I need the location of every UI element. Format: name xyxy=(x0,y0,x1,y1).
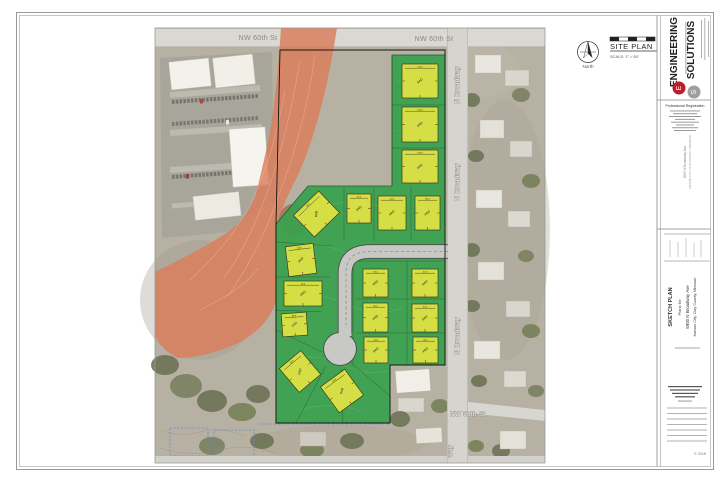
project-address: 5900 N Broadway Ave xyxy=(685,285,690,329)
lot-pad: 135.0PAD xyxy=(402,64,438,98)
tb-address-small-1: 5900 N Broadway Ave xyxy=(683,146,687,179)
site-plan-title: SITE PLAN SCALE: 1" = 60' xyxy=(610,37,657,59)
logo-e-letter: E xyxy=(676,86,683,91)
lot-pad: 60.0PAD xyxy=(412,304,438,332)
lot-pad: 60.0PAD xyxy=(413,337,438,363)
site-plan-sheet: 60.0PAD60.0PAD60.0PAD60.0PAD135.0PAD135.… xyxy=(0,0,720,479)
lot-pad: 60.0PAD xyxy=(285,243,316,276)
tb-data-table xyxy=(664,234,710,261)
svg-text:135.0: 135.0 xyxy=(417,66,423,68)
street-label-nw60-left: NW 60th St xyxy=(239,35,278,42)
tb-address-small-2: KANSAS CITY, CLAY COUNTY, MISSOURI xyxy=(688,135,692,190)
lot-pad: 60.0PAD xyxy=(363,303,388,332)
lot-pad: 60.0PAD xyxy=(364,337,388,363)
lot-pad: 60.0PAD xyxy=(284,281,322,306)
nw-60th-street-road xyxy=(155,28,545,47)
lot-pad: 60.0PAD xyxy=(412,269,438,297)
lot-pad: 60.0PAD xyxy=(347,194,371,223)
logo-solutions: SOLUTIONS xyxy=(686,21,697,80)
site-plan-label: SITE PLAN xyxy=(610,42,653,51)
title-block: ENGINEERING SOLUTIONS E S Professional R… xyxy=(657,16,711,467)
logo-engineering: ENGINEERING xyxy=(669,17,680,87)
project-plans-for: Plans for: xyxy=(677,299,682,316)
project-title: SKETCH PLAN xyxy=(668,287,674,326)
prof-reg-header: Professional Registration xyxy=(666,104,705,108)
lot-pad: 135.0PAD xyxy=(402,150,438,183)
lot-pad: 60.0PAD xyxy=(378,196,406,230)
project-block: SKETCH PLAN Plans for: 5900 N Broadway A… xyxy=(668,277,697,336)
north-arrow: North xyxy=(578,41,599,69)
street-label-broadway-top: N Broadway xyxy=(454,66,461,104)
certification-fineprint xyxy=(668,386,702,402)
prof-reg-fineprint xyxy=(669,111,701,132)
street-label-nw60-right: NW 60th St xyxy=(415,36,454,43)
lot-pad: 60.0PAD xyxy=(415,196,440,230)
svg-text:135.0: 135.0 xyxy=(417,109,423,111)
street-label-nw59: NW 59th St xyxy=(450,411,485,418)
street-label-broadway-mid: N Broadway xyxy=(454,163,461,201)
svg-text:PAD: PAD xyxy=(314,210,318,217)
lot-pad: 135.0PAD xyxy=(402,107,438,142)
revision-lines xyxy=(667,408,707,441)
lot-pad: 60.0PAD xyxy=(281,312,308,337)
north-label: North xyxy=(582,64,594,69)
project-city: Kansas City, Clay County, Missouri xyxy=(693,277,697,336)
logo-s-letter: S xyxy=(691,90,698,95)
scale-label: SCALE: 1" = 60' xyxy=(610,54,639,59)
svg-text:135.0: 135.0 xyxy=(417,152,423,154)
street-label-broadway-bottom: N Broadway xyxy=(454,317,461,355)
copyright-label: © 2018 xyxy=(694,452,706,456)
drawing-sheet: { "streets": { "nw60_a": "NW 60th St", "… xyxy=(0,0,720,479)
lot-pad: 60.0PAD xyxy=(363,269,388,297)
aerial-map: 60.0PAD60.0PAD60.0PAD60.0PAD135.0PAD135.… xyxy=(140,28,550,463)
street-label-broadway-partial: way xyxy=(447,444,454,458)
